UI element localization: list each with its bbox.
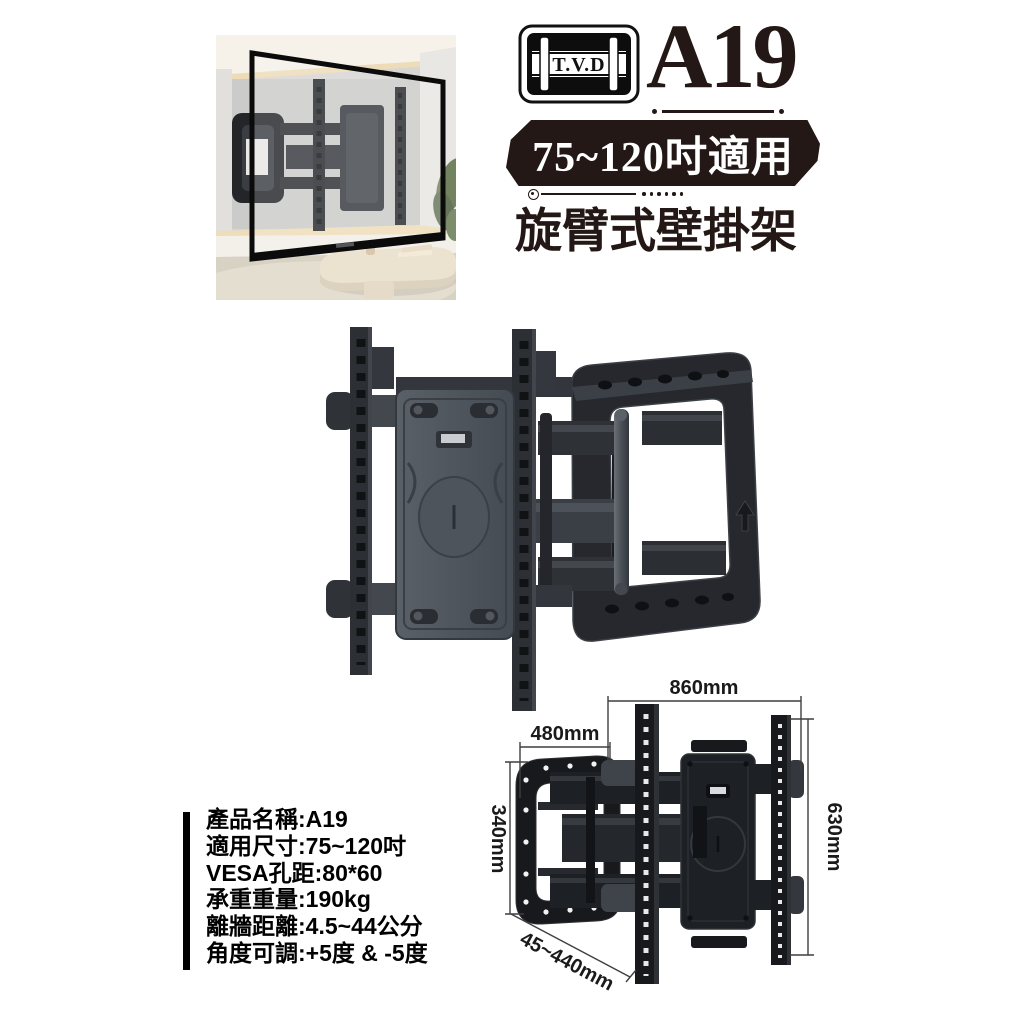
spec-product-name: 產品名稱:A19 xyxy=(206,806,428,833)
wall-plate-frame xyxy=(572,353,760,641)
target-dot-icon xyxy=(528,189,539,200)
spec-fit-size: 適用尺寸:75~120吋 xyxy=(206,833,428,860)
spec-wall-distance: 離牆距離:4.5~44公分 xyxy=(206,913,428,940)
size-badge-text: 75~120吋適用 xyxy=(532,123,794,184)
living-room-scene xyxy=(216,35,456,300)
dim-total-width: 860mm xyxy=(670,677,739,699)
brand-logo-icon: T.V.D xyxy=(518,24,640,104)
spec-tilt: 角度可調:+5度 & -5度 xyxy=(206,940,428,967)
model-underline-decoration xyxy=(652,108,784,114)
spec-list: 產品名稱:A19 適用尺寸:75~120吋 VESA孔距:80*60 承重重量:… xyxy=(183,806,523,970)
tv-frame-outline xyxy=(252,53,443,259)
dim-rail-far xyxy=(753,715,804,965)
spec-vesa: VESA孔距:80*60 xyxy=(206,860,428,887)
product-type-title: 旋臂式壁掛架 xyxy=(515,201,815,263)
badge-underline-decoration xyxy=(528,188,693,200)
dim-rail-near xyxy=(635,704,659,984)
tv-rail-left xyxy=(350,327,394,675)
spec-list-accent-bar xyxy=(183,812,190,970)
spec-load: 承重重量:190kg xyxy=(206,886,428,913)
brand-logo-text: T.V.D xyxy=(552,54,605,76)
vesa-plate xyxy=(396,389,514,639)
model-name: A19 xyxy=(646,6,826,106)
size-badge: 75~120吋適用 xyxy=(506,120,820,186)
dim-bracket-height: 630mm xyxy=(823,803,845,872)
dim-wall-plate-width: 480mm xyxy=(531,723,600,745)
dim-vesa-plate xyxy=(681,740,755,948)
product-poster: T.V.D A19 75~120吋適用 旋臂式壁掛架 xyxy=(0,0,1024,1024)
hero-photo xyxy=(216,35,456,300)
